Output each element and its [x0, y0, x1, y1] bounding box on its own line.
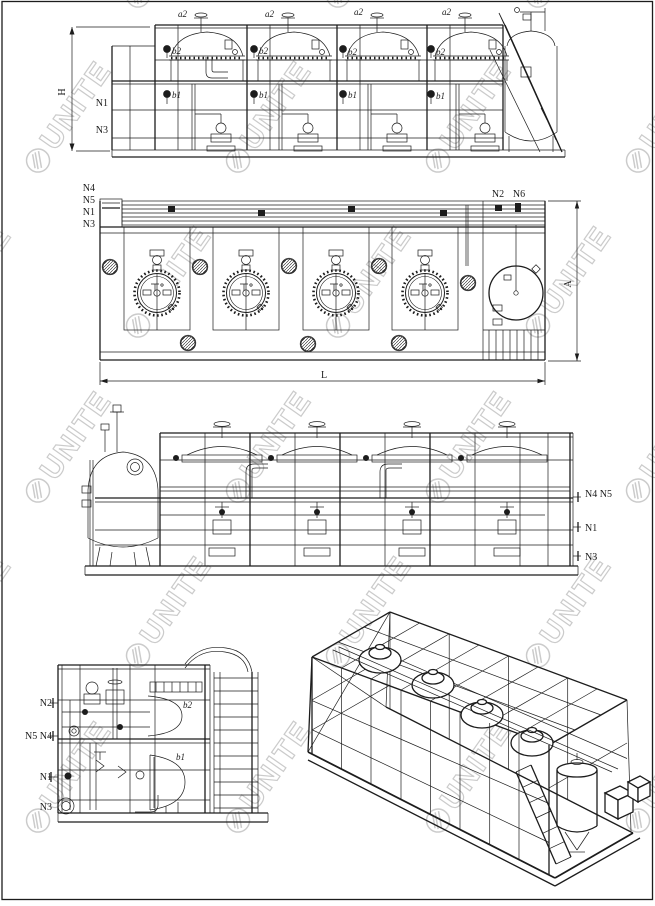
svg-text:b1: b1 [259, 90, 268, 100]
dim-length-label: L [321, 370, 327, 381]
end-equipment [62, 668, 202, 813]
end-nozzle-stubs [48, 698, 79, 814]
front-tank-and-stairs [490, 8, 562, 153]
valve-tag-b2: b2 [183, 700, 193, 710]
plan-vessels [135, 225, 544, 330]
nozzle-label-n3: N3 [83, 219, 95, 230]
stair-stringer [505, 25, 562, 152]
nozzle-label-n2: N2 [492, 189, 504, 200]
svg-text:b2: b2 [172, 46, 182, 56]
valve-tags-b1: b1 b1 b1 b1 [172, 90, 445, 101]
svg-text:a2: a2 [178, 9, 188, 19]
nozzle-label-n3: N3 [96, 125, 108, 136]
nozzle-label-n1: N1 [96, 98, 108, 109]
nozzle-label-n3: N3 [40, 802, 52, 813]
nozzle-label-n4-n5: N4 N5 [585, 489, 612, 500]
nozzle-label-n6: N6 [513, 189, 525, 200]
front-elevation-view: H N1 N3 a2 a2 a2 a2 b2 b2 b2 b2 b1 b1 b1… [57, 7, 565, 157]
drawing-sheet: UNITEUNITEUNITEUNITEUNITEUNITEUNITEUNITE… [0, 0, 655, 906]
dim-height-label: H [57, 88, 68, 95]
svg-text:b1: b1 [436, 91, 445, 101]
svg-text:b2: b2 [348, 47, 358, 57]
rear-elevation-view: N4 N5 N1 N3 [82, 405, 612, 575]
isometric-view [308, 612, 650, 886]
nozzle-label-n4: N4 [83, 183, 95, 194]
nozzle-label-n3: N3 [585, 552, 597, 563]
end-frame [58, 647, 268, 822]
valve-tags-b2: b2 b2 b2 b2 [172, 46, 446, 57]
dim-L: L [100, 362, 545, 385]
svg-text:b2: b2 [436, 47, 446, 57]
rear-left-tank [82, 405, 158, 566]
rear-frame [85, 433, 578, 575]
svg-text:b1: b1 [172, 90, 181, 100]
dim-A: A [548, 201, 581, 361]
iso-junction-boxes [605, 776, 650, 819]
nozzle-label-n5: N5 [83, 195, 95, 206]
svg-text:a2: a2 [265, 9, 275, 19]
nozzle-label-n5-n4: N5 N4 [25, 731, 52, 742]
plan-view: N4 N5 N1 N3 N2 N6 L A [83, 183, 581, 385]
svg-text:a2: a2 [354, 7, 364, 17]
rear-vessels [173, 422, 547, 462]
svg-text:b1: b1 [348, 90, 357, 100]
rear-pumps [160, 502, 545, 556]
end-ladder [214, 672, 258, 813]
valve-tag-b1: b1 [176, 752, 185, 762]
nozzle-label-n2: N2 [40, 698, 52, 709]
nozzle-label-n1: N1 [83, 207, 95, 218]
svg-text:a2: a2 [442, 7, 452, 17]
engineering-drawing: H N1 N3 a2 a2 a2 a2 b2 b2 b2 b2 b1 b1 b1… [0, 0, 655, 906]
nozzle-label-n1: N1 [585, 523, 597, 534]
svg-text:b2: b2 [259, 46, 269, 56]
valve-tags-a2: a2 a2 a2 a2 [178, 7, 452, 19]
front-vessels [164, 13, 510, 151]
rear-nozzle-stubs [573, 492, 581, 561]
iso-tank-and-stairs [516, 753, 650, 864]
nozzle-label-n1: N1 [40, 772, 52, 783]
end-elevation-view: N2 N5 N4 N1 N3 b2 b1 [25, 647, 268, 822]
dim-width-label: A [563, 280, 574, 288]
